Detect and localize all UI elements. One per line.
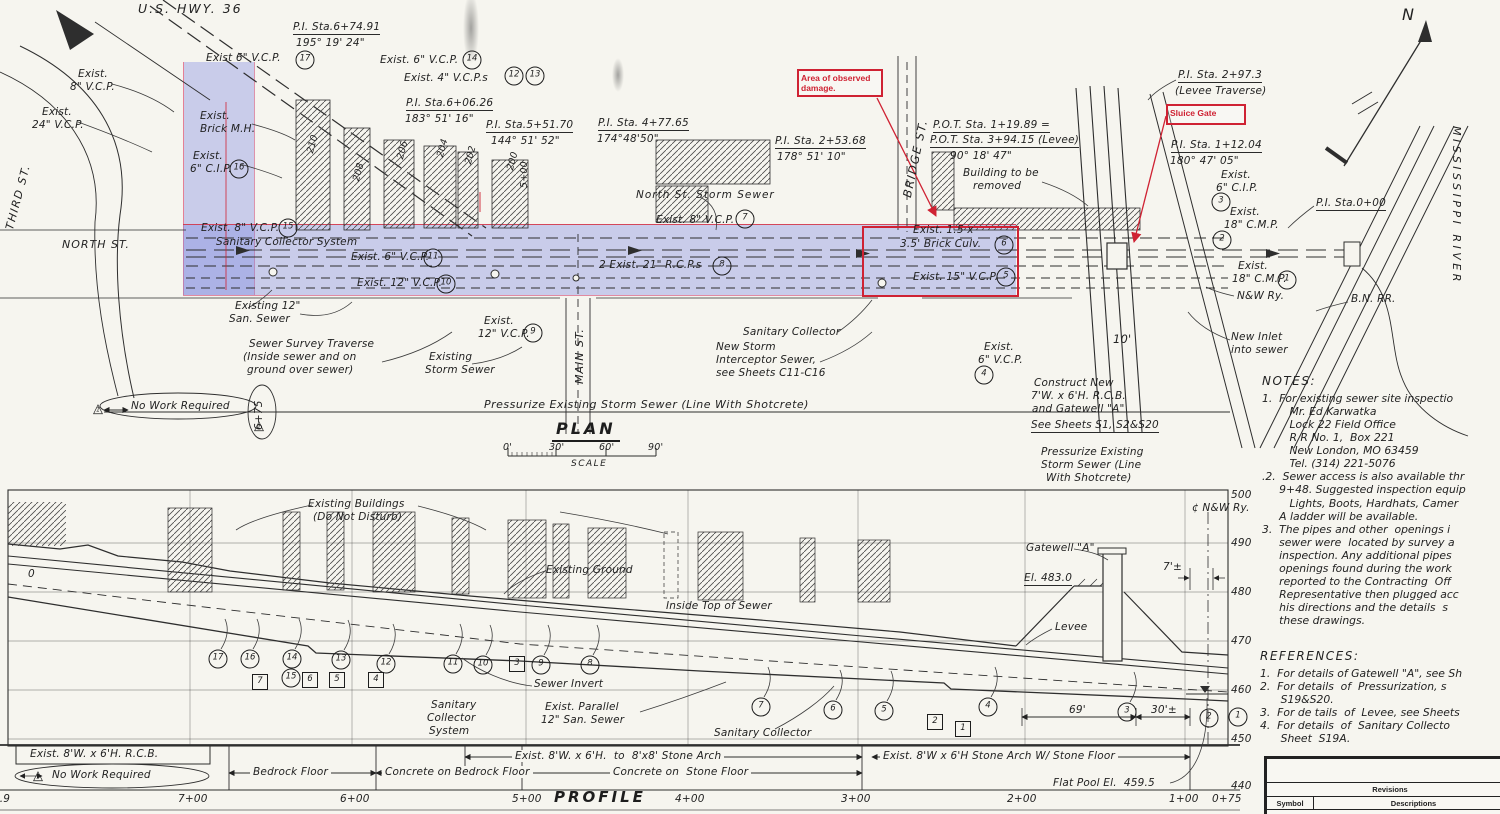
plan-marker-circle-13: 13 [526,67,545,86]
plan-label: Exist. [78,68,108,80]
plan-label: 2 Exist. 21" R.C.P.s [599,259,702,271]
plan-label: New Storm [716,341,776,353]
plan-label: 90° 18' 47" [950,150,1012,162]
profile-marker-circle-4: 4 [979,698,998,717]
plan-label: 195° 19' 24" [296,37,365,49]
revisions-empty-row [1267,759,1500,783]
plan-label: Exist. [984,341,1014,353]
profile-station: 7+00 [178,793,208,805]
profile-label: Collector [427,712,475,724]
plan-marker-circle-16: 16 [230,160,249,179]
plan-label: see Sheets C11-C16 [716,367,826,379]
plan-marker-circle-10: 10 [437,275,456,294]
notes-block: NOTES: 1. For existing sewer site inspec… [1262,375,1500,627]
plan-label: See Sheets S1, S2&S20 [1031,419,1159,433]
plan-label: Sanitary Collector [743,326,840,338]
plan-label: Pressurize Existing [1041,446,1144,458]
profile-marker-circle-13: 13 [332,651,351,670]
profile-elevation: 480 [1231,586,1252,598]
plan-label: North St. Storm Sewer [636,189,775,201]
profile-marker-square-2: 2 [927,714,943,730]
profile-marker-circle-14: 14 [283,650,302,669]
plan-label: B.N. RR. [1351,293,1396,305]
plan-label: 10' [1113,333,1131,346]
note-line: New London, MO 63459 [1262,444,1500,457]
reference-line: Sheet S19A. [1260,732,1500,745]
plan-label: Exist. 4" V.C.P.s [404,72,488,84]
note-line: his directions and the details s [1262,601,1500,614]
drawing-sheet: Area of observed damage. Sluice Gate U.S… [0,0,1500,814]
profile-marker-circle-11: 11 [444,655,463,674]
plan-marker-circle-2: 2 [1213,231,1232,250]
plan-label: 174°48'50" [597,133,659,145]
plan-label: 12" V.C.P. [478,328,530,340]
plan-label: Exist. 15" V.C.P. [913,271,998,283]
profile-label: Flat Pool El. 459.5 [1053,777,1155,789]
profile-label: System [429,725,469,737]
profile-marker-circle-16: 16 [241,650,260,669]
scan-artifact [463,0,479,64]
profile-station: 3+00 [841,793,871,805]
plan-label: 5+00 [520,161,531,188]
profile-marker-square-7: 7 [252,674,268,690]
plan-label: N [1402,6,1414,24]
damage-area-rect [862,226,1019,297]
plan-scale-label: SCALE [571,459,607,469]
plan-label: Sanitary Collector System [216,236,357,248]
plan-label: Existing [429,351,472,363]
profile-label: Concrete on Stone Floor [610,766,751,778]
profile-station: 1+00 [1169,793,1199,805]
note-line: A ladder will be available. [1262,510,1500,523]
profile-label: Exist. 8'W. x 6'H. R.C.B. [30,748,158,760]
plan-marker-circle-9: 9 [524,324,543,343]
plan-label: 24" V.C.P. [32,119,84,131]
profile-label: Bedrock Floor [250,766,331,778]
profile-station: 92.9 [0,793,10,805]
profile-label: Exist. Parallel [545,701,619,713]
profile-marker-square-5: 5 [329,672,345,688]
reference-line: S19&S20. [1260,693,1500,706]
plan-label: 180° 47' 05" [1170,155,1239,167]
profile-label: 12" San. Sewer [541,714,624,726]
profile-station: 2+00 [1007,793,1037,805]
plan-label: Pressurize Existing Storm Sewer (Line Wi… [484,399,809,412]
plan-label: 183° 51' 16" [405,113,474,125]
note-line: these drawings. [1262,614,1500,627]
profile-marker-circle-7: 7 [752,698,771,717]
plan-label: P.I. Sta. 1+12.04 [1171,139,1262,153]
scan-artifact [612,58,624,92]
plan-label: Exist. [1230,206,1260,218]
sluice-gate-annotation-box[interactable]: Sluice Gate [1166,104,1246,125]
profile-elevation: 490 [1231,537,1252,549]
note-line: reported to the Contracting Off [1262,575,1500,588]
plan-scale-tick: 60' [599,443,614,454]
plan-label: P.O.T. Sta. 1+19.89 = [933,119,1050,133]
profile-label: 30'± [1148,704,1180,716]
plan-marker-circle-7: 7 [736,210,755,229]
plan-label: ground over sewer) [247,364,353,376]
profile-marker-circle-2: 2 [1200,709,1219,728]
profile-title: PROFILE [550,790,650,808]
plan-label: P.I. Sta. 2+97.3 [1178,69,1262,83]
plan-scale-tick: 0' [503,443,512,454]
profile-station: 6+00 [340,793,370,805]
note-line: Mr. Ed Karwatka [1262,405,1500,418]
plan-marker-circle-11: 11 [424,249,443,268]
plan-label: Exist 6" V.C.P. [206,52,281,64]
revisions-descriptions-header: Descriptions [1314,797,1500,809]
plan-marker-circle-15: 15 [279,219,298,238]
note-line: 1. For existing sewer site inspectio [1262,392,1500,405]
note-line: .2. Sewer access is also available thr [1262,470,1500,483]
profile-marker-circle-10: 10 [474,656,493,675]
plan-label: N&W Ry. [1237,290,1284,302]
profile-elevation: 440 [1231,780,1252,792]
profile-marker-circle-9: 9 [532,656,551,675]
plan-label: NORTH ST. [62,239,130,252]
profile-label: ¢ N&W Ry. [1192,502,1250,514]
plan-label: Storm Sewer [425,364,495,376]
profile-label: 69' [1066,704,1089,716]
profile-marker-circle-15: 15 [282,669,301,688]
note-line: R R No. 1, Box 221 [1262,431,1500,444]
note-line: 9+48. Suggested inspection equip [1262,483,1500,496]
plan-label: Exist. [1221,169,1251,181]
reference-line: 3. For de tails of Levee, see Sheets [1260,706,1500,719]
note-line: Lights, Boots, Hardhats, Camer [1262,497,1500,510]
plan-label: Exist. 6" V.C.P. [351,251,429,263]
reference-line: 1. For details of Gatewell "A", see Sh [1260,667,1500,680]
plan-label: Exist. [193,150,223,162]
revisions-title: Revisions [1267,783,1500,797]
plan-label: P.I. Sta. 2+53.68 [775,135,866,149]
profile-station: 5+00 [512,793,542,805]
plan-label: and Gatewell "A" [1032,403,1125,415]
note-line: inspection. Any additional pipes [1262,549,1500,562]
profile-marker-triangle-1: △1 [33,770,43,783]
plan-marker-circle-5: 5 [997,268,1016,287]
plan-marker-circle-3: 3 [1212,193,1231,212]
profile-station: 4+00 [675,793,705,805]
plan-label: Exist. [42,106,72,118]
sluice-gate-label: Sluice Gate [1170,108,1216,118]
plan-label: Existing 12" [235,300,301,312]
profile-marker-square-1: 1 [955,721,971,737]
plan-label: removed [973,180,1021,192]
profile-label: Exist. 8'W x 6'H Stone Arch W/ Stone Flo… [880,750,1118,762]
note-line: 3. The pipes and other openings i [1262,523,1500,536]
plan-label: MISSISSIPPI RIVER [1449,126,1462,285]
damage-annotation-box[interactable]: Area of observed damage. [797,69,883,97]
profile-elevation: 470 [1231,635,1252,647]
plan-label: P.I. Sta.6+74.91 [293,21,380,35]
plan-label: 8" V.C.P. [70,81,115,93]
plan-label: No Work Required [131,400,230,412]
profile-label: Existing Ground [546,564,633,576]
plan-label: Exist. [200,110,230,122]
plan-label: Exist. [1238,260,1268,272]
plan-label: With Shotcrete) [1046,472,1132,484]
note-line: openings found during the work [1262,562,1500,575]
profile-label: Sewer Invert [534,678,603,690]
revisions-table: Revisions Symbol Descriptions [1264,756,1500,814]
profile-marker-circle-3: 3 [1118,703,1137,722]
references-block: REFERENCES: 1. For details of Gatewell "… [1260,650,1500,745]
plan-marker-circle-1: 1 [1278,271,1297,290]
plan-label: U.S. HWY. 36 [138,2,243,16]
profile-label: Concrete on Bedrock Floor [382,766,533,778]
plan-label: P.I. Sta.0+00 [1316,197,1386,211]
reference-line: 2. For details of Pressurization, s [1260,680,1500,693]
plan-marker-circle-17: 17 [296,51,315,70]
plan-label: Exist. 8" V.C.P. [201,222,279,234]
profile-label: 0 [28,568,35,580]
profile-label: Levee [1055,621,1087,633]
plan-label: Interceptor Sewer, [716,354,816,366]
profile-label: 7'± [1163,561,1182,573]
plan-label: Storm Sewer (Line [1041,459,1141,471]
plan-marker-circle-6: 6 [995,236,1014,255]
plan-label: 144° 51' 52" [491,135,560,147]
profile-label: Sanitary [431,699,476,711]
notes-heading: NOTES: [1262,375,1500,389]
note-line: Representative then plugged acc [1262,588,1500,601]
plan-label: 6" C.I.P. [190,163,232,175]
profile-label: Inside Top of Sewer [666,600,772,612]
plan-marker-triangle-1: △1 [93,403,103,416]
profile-label: (Do Not Disturb) [313,511,402,523]
note-line: Tel. (314) 221-5076 [1262,457,1500,470]
damage-annotation-label: Area of observed damage. [801,73,870,93]
profile-label: Existing Buildings [308,498,405,510]
plan-label: (Inside sewer and on [243,351,357,363]
plan-label: San. Sewer [229,313,290,325]
plan-label: 18" C.M.P. [1224,219,1279,231]
profile-marker-circle-1: 1 [1229,708,1248,727]
profile-marker-circle-5: 5 [875,702,894,721]
plan-label: Exist. 12" V.C.P. [357,277,442,289]
plan-label: P.O.T. Sta. 3+94.15 (Levee) [930,134,1079,148]
plan-marker-triangle-1: △1 [254,420,264,433]
plan-label: Sewer Survey Traverse [249,338,374,350]
profile-station: 0+75 [1212,793,1242,805]
plan-label: Exist. 1.5 x [913,224,974,236]
plan-label: Brick M.H. [200,123,255,135]
profile-elevation: 500 [1231,489,1252,501]
plan-label: 178° 51' 10" [777,151,846,163]
profile-marker-square-4: 4 [368,672,384,688]
profile-label: Sanitary Collector [714,727,811,739]
plan-label: Exist. 6" V.C.P. [380,54,458,66]
plan-marker-circle-12: 12 [505,67,524,86]
note-line: Lock 22 Field Office [1262,418,1500,431]
plan-label: Exist. 8" V.C.P. [656,214,734,226]
profile-marker-square-6: 6 [302,672,318,688]
plan-label: 7'W. x 6'H. R.C.B. [1031,390,1126,402]
plan-label: Exist. [484,315,514,327]
plan-label: P.I. Sta.6+06.26 [406,97,493,111]
plan-scale-tick: 30' [549,443,564,454]
plan-label: New Inlet [1231,331,1282,343]
profile-marker-circle-6: 6 [824,701,843,720]
plan-label: P.I. Sta.5+51.70 [486,119,573,133]
plan-scale-tick: 90' [648,443,663,454]
profile-label: El. 483.0 [1024,572,1072,586]
revisions-symbol-header: Symbol [1267,797,1314,809]
plan-label: Construct New [1034,377,1114,389]
profile-marker-square-3: 3 [509,656,525,672]
note-line: sewer were located by survey a [1262,536,1500,549]
reference-line: 4. For details of Sanitary Collecto [1260,719,1500,732]
plan-marker-circle-8: 8 [713,257,732,276]
profile-label: No Work Required [52,769,151,781]
plan-title: PLAN [552,421,620,442]
profile-marker-circle-8: 8 [581,656,600,675]
plan-label: P.I. Sta. 4+77.65 [598,117,689,131]
profile-marker-circle-17: 17 [209,650,228,669]
plan-label: (Levee Traverse) [1175,85,1266,97]
plan-label: into sewer [1231,344,1288,356]
plan-label: 3.5' Brick Culv. [900,238,981,250]
plan-marker-circle-4: 4 [975,366,994,385]
profile-elevation: 460 [1231,684,1252,696]
plan-label: MAIN ST. [574,328,587,384]
profile-label: Gatewell "A" [1026,542,1095,554]
plan-label: Building to be [963,167,1039,179]
profile-elevation: 450 [1231,733,1252,745]
profile-marker-circle-12: 12 [377,655,396,674]
profile-label: Exist. 8'W. x 6'H. to 8'x8' Stone Arch [512,750,724,762]
plan-label: 6" V.C.P. [978,354,1023,366]
references-heading: REFERENCES: [1260,650,1500,664]
